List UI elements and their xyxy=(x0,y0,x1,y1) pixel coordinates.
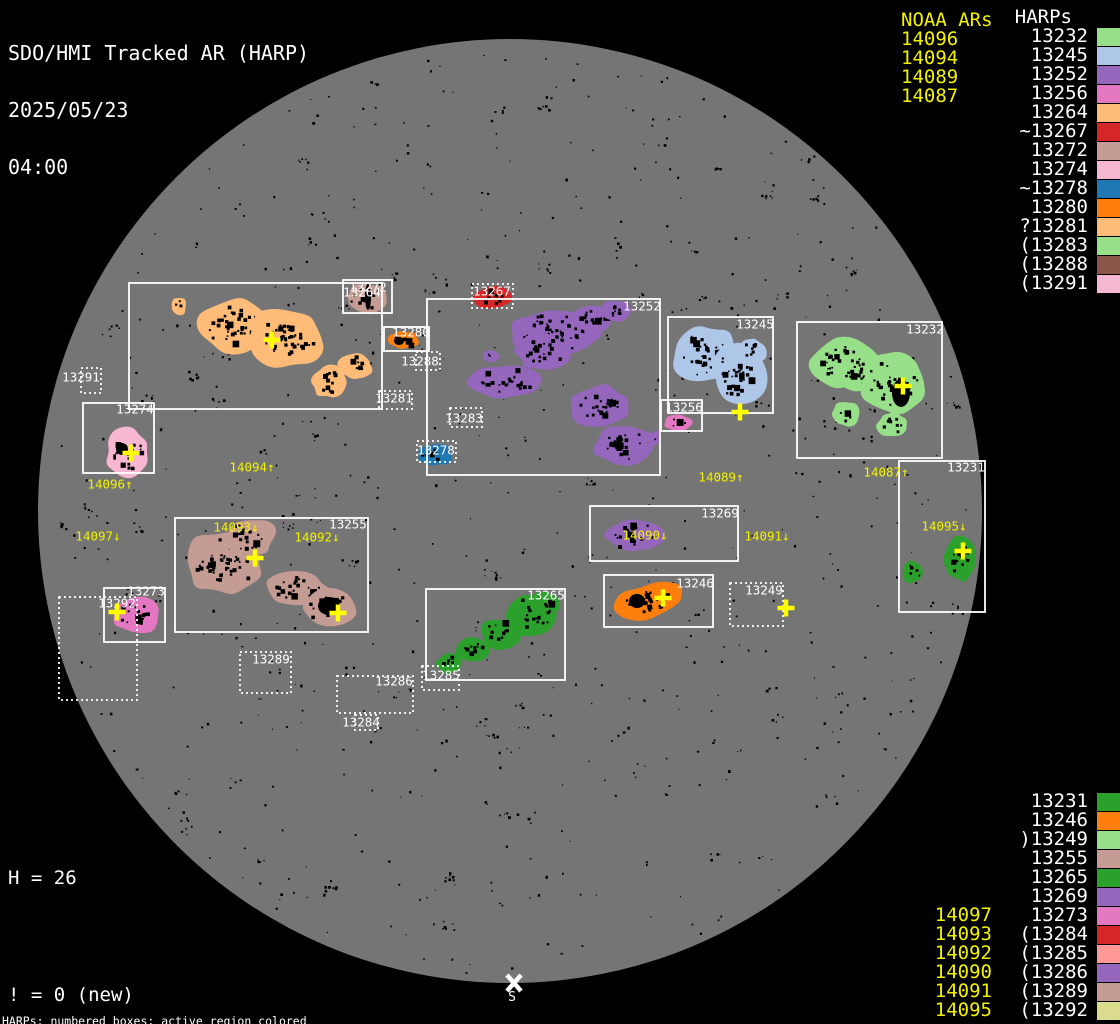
harp-color-swatch xyxy=(1097,793,1120,811)
harp-color-swatch xyxy=(1097,831,1120,849)
harp-number: (13292 xyxy=(1019,1001,1088,1020)
legend-gap xyxy=(8,926,225,948)
noaa-shifted-label-14096: 14096↑ xyxy=(87,477,132,492)
harp-label-13245: 13245 xyxy=(736,317,774,332)
noaa-shifted-label-14089: 14089↑ xyxy=(698,470,743,485)
harp-label-13291: 13291 xyxy=(62,370,100,385)
harp-color-swatch xyxy=(1097,926,1120,944)
noaa-shifted-label-14087: 14087↑ xyxy=(863,465,908,480)
harp-color-swatch xyxy=(1097,812,1120,830)
harp-color-swatch xyxy=(1097,47,1120,65)
harp-color-swatch xyxy=(1097,85,1120,103)
harp-label-13274: 13274 xyxy=(116,402,154,417)
noaa-ar-number-14087: 14087 xyxy=(901,87,993,106)
harp-color-swatch xyxy=(1097,964,1120,982)
harp-label-13252: 13252 xyxy=(623,299,661,314)
harp-label-13288: 13288 xyxy=(401,354,439,369)
noaa-shifted-label-14095: 14095↓ xyxy=(921,519,966,534)
harp-color-swatch xyxy=(1097,237,1120,255)
harp-label-13249: 13249 xyxy=(745,583,783,598)
noaa-ar-number-14095: 14095 xyxy=(935,1001,992,1020)
harp-list-item-13291: (13291 xyxy=(1019,274,1120,293)
harp-label-13285: 13285 xyxy=(422,668,460,683)
harp-color-swatch xyxy=(1097,28,1120,46)
noaa-shifted-label-14091: 14091↓ xyxy=(744,529,789,544)
harp-color-swatch xyxy=(1097,850,1120,868)
noaa-shifted-label-14094: 14094↑ xyxy=(229,460,274,475)
harp-label-13269: 13269 xyxy=(701,506,739,521)
footer-line-harps: HARPs: numbered boxes; active region col… xyxy=(2,1015,404,1024)
south-pole-label: S xyxy=(508,990,516,1005)
noaa-shifted-label-14090: 14090↓ xyxy=(622,528,667,543)
noaa-shifted-label-14097: 14097↓ xyxy=(75,529,120,544)
harp-color-swatch xyxy=(1097,180,1120,198)
noaa-top-list: 14096140941408914087 xyxy=(901,30,993,106)
harp-label-13256: 13256 xyxy=(665,400,703,415)
harp-label-13283: 13283 xyxy=(445,411,483,426)
harp-color-swatch xyxy=(1097,869,1120,887)
harp-number: (13291 xyxy=(1019,274,1088,293)
harps-bottom-list: 1323113246)1324913255132651326913273(132… xyxy=(1019,792,1120,1020)
harp-color-swatch xyxy=(1097,888,1120,906)
harp-color-swatch xyxy=(1097,256,1120,274)
harp-color-swatch xyxy=(1097,199,1120,217)
harp-color-swatch xyxy=(1097,123,1120,141)
noaa-shifted-label-14093: 14093↓ xyxy=(213,520,258,535)
harp-color-swatch xyxy=(1097,161,1120,179)
harp-label-13267: 13267 xyxy=(473,284,511,299)
harp-label-13284: 13284 xyxy=(342,715,380,730)
noaa-top-column: NOAA ARs 14096140941408914087 xyxy=(901,11,993,106)
title-block: SDO/HMI Tracked AR (HARP) 2025/05/23 04:… xyxy=(8,6,309,215)
noaa-bottom-list: 140971409314092140901409114095 xyxy=(935,906,992,1020)
harp-color-swatch xyxy=(1097,983,1120,1001)
time-label: 04:00 xyxy=(8,158,309,177)
harp-color-swatch xyxy=(1097,907,1120,925)
harp-label-13272: 13272 xyxy=(349,280,387,295)
harp-label-13278: 13278 xyxy=(417,443,455,458)
harp-color-swatch xyxy=(1097,1002,1120,1020)
harp-label-13289: 13289 xyxy=(252,652,290,667)
harps-top-list: 1323213245132521325613264~13267132721327… xyxy=(1019,27,1120,293)
harp-label-13246: 13246 xyxy=(676,576,714,591)
harp-label-13231: 13231 xyxy=(947,460,985,475)
date-label: 2025/05/23 xyxy=(8,101,309,120)
harp-color-swatch xyxy=(1097,945,1120,963)
harp-label-13280: 13280 xyxy=(392,325,430,340)
harp-color-swatch xyxy=(1097,275,1120,293)
harp-color-swatch xyxy=(1097,66,1120,84)
footer-notes: HARPs: numbered boxes; active region col… xyxy=(2,991,404,1024)
harp-list-item-13292: (13292 xyxy=(1019,1001,1120,1020)
noaa-shifted-label-14092: 14092↓ xyxy=(294,530,339,545)
harp-color-swatch xyxy=(1097,142,1120,160)
app-title: SDO/HMI Tracked AR (HARP) xyxy=(8,44,309,63)
harp-label-13265: 13265 xyxy=(527,588,565,603)
harp-label-13232: 13232 xyxy=(906,322,944,337)
harp-color-swatch xyxy=(1097,218,1120,236)
harp-color-swatch xyxy=(1097,104,1120,122)
harp-label-13286: 13286 xyxy=(375,674,413,689)
harp-label-13281: 13281 xyxy=(375,391,413,406)
harp-count-line: H = 26 xyxy=(8,869,225,888)
screen: 1326413272132671328013288132811325213283… xyxy=(0,0,1120,1024)
